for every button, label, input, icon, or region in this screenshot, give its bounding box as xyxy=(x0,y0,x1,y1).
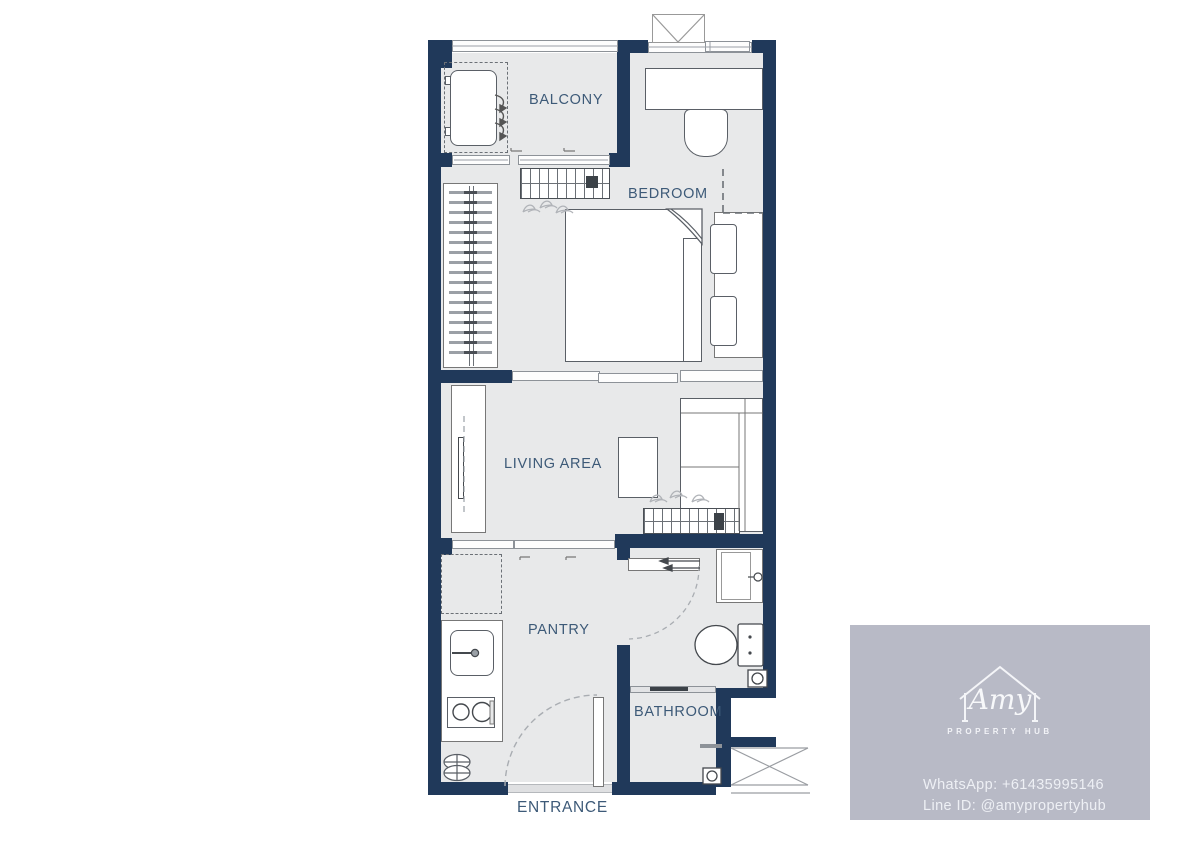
wardrobe-hanger-clips xyxy=(464,191,477,361)
ac-louver-dark-cell xyxy=(586,176,598,188)
balcony-sliding-door-right xyxy=(518,155,610,165)
room-label-living: LIVING AREA xyxy=(504,456,602,472)
tv xyxy=(458,437,464,499)
room-label-pantry: PANTRY xyxy=(528,622,590,638)
brand-script-name: Amy xyxy=(966,683,1033,716)
wall-living-pantry-stub xyxy=(441,538,452,555)
window-strip-top-right xyxy=(705,41,750,52)
service-shaft-area xyxy=(731,747,808,787)
desk-chair xyxy=(684,109,728,157)
pillow-1 xyxy=(710,224,737,274)
window-shaft-top xyxy=(652,14,705,43)
wall-bathroom-top xyxy=(615,534,776,548)
living-pantry-panel-1 xyxy=(452,540,514,549)
bed-duvet-edge xyxy=(683,238,702,362)
room-label-bathroom: BATHROOM xyxy=(634,704,722,720)
room-label-entrance: ENTRANCE xyxy=(517,799,608,817)
room-label-balcony: BALCONY xyxy=(529,92,603,108)
ac-louver-dark-cell-living xyxy=(714,513,724,530)
watermark-line-id: Line ID: @amypropertyhub xyxy=(923,798,1106,814)
room-label-bedroom: BEDROOM xyxy=(628,186,708,202)
stove xyxy=(447,697,495,728)
wall-balcony-bottom-right xyxy=(609,153,630,167)
bedroom-living-window xyxy=(680,370,763,382)
kitchen-sink xyxy=(450,630,494,676)
wall-niche-opening xyxy=(731,698,776,737)
entrance-door-leaf xyxy=(593,697,604,787)
wall-bottom-left xyxy=(428,782,508,795)
bedroom-sliding-panel-2 xyxy=(598,373,678,383)
wall-left xyxy=(428,40,441,795)
desk xyxy=(645,68,763,110)
coffee-table xyxy=(618,437,658,498)
shower-partition-door xyxy=(650,687,688,691)
wall-pantry-bathroom xyxy=(617,645,630,782)
brand-house-logo: Amy xyxy=(952,662,1048,726)
overhead-cabinet-dashed xyxy=(441,554,502,614)
ac-louver-unit-living xyxy=(643,508,740,534)
wall-balcony-divider xyxy=(617,40,630,167)
wall-right xyxy=(763,40,776,745)
balcony-top-railing xyxy=(452,40,618,52)
tv-console xyxy=(451,385,486,533)
brand-subtitle: PROPERTY HUB xyxy=(850,727,1150,736)
floorplan-image: BALCONY BEDROOM LIVING AREA PANTRY BATHR… xyxy=(0,0,1200,845)
wall-bedroom-living xyxy=(441,370,512,383)
bedroom-sliding-panel-1 xyxy=(512,371,600,381)
shower-screen xyxy=(700,744,722,748)
wall-balcony-bottom-left xyxy=(441,153,452,167)
living-pantry-panel-2 xyxy=(514,540,615,549)
balcony-sliding-door-left xyxy=(452,155,510,165)
ac-condenser-foot-top xyxy=(445,76,451,85)
pillow-2 xyxy=(710,296,737,346)
bed-mattress xyxy=(565,209,702,362)
ac-condenser-foot-bottom xyxy=(445,127,451,136)
wall-shaft-left xyxy=(716,747,731,787)
wall-bottom-mid xyxy=(612,782,716,795)
bathroom-door-leaf xyxy=(628,558,700,571)
watermark-whatsapp: WhatsApp: +61435995146 xyxy=(923,777,1104,793)
vanity-basin xyxy=(721,552,751,600)
ac-condenser xyxy=(450,70,497,146)
